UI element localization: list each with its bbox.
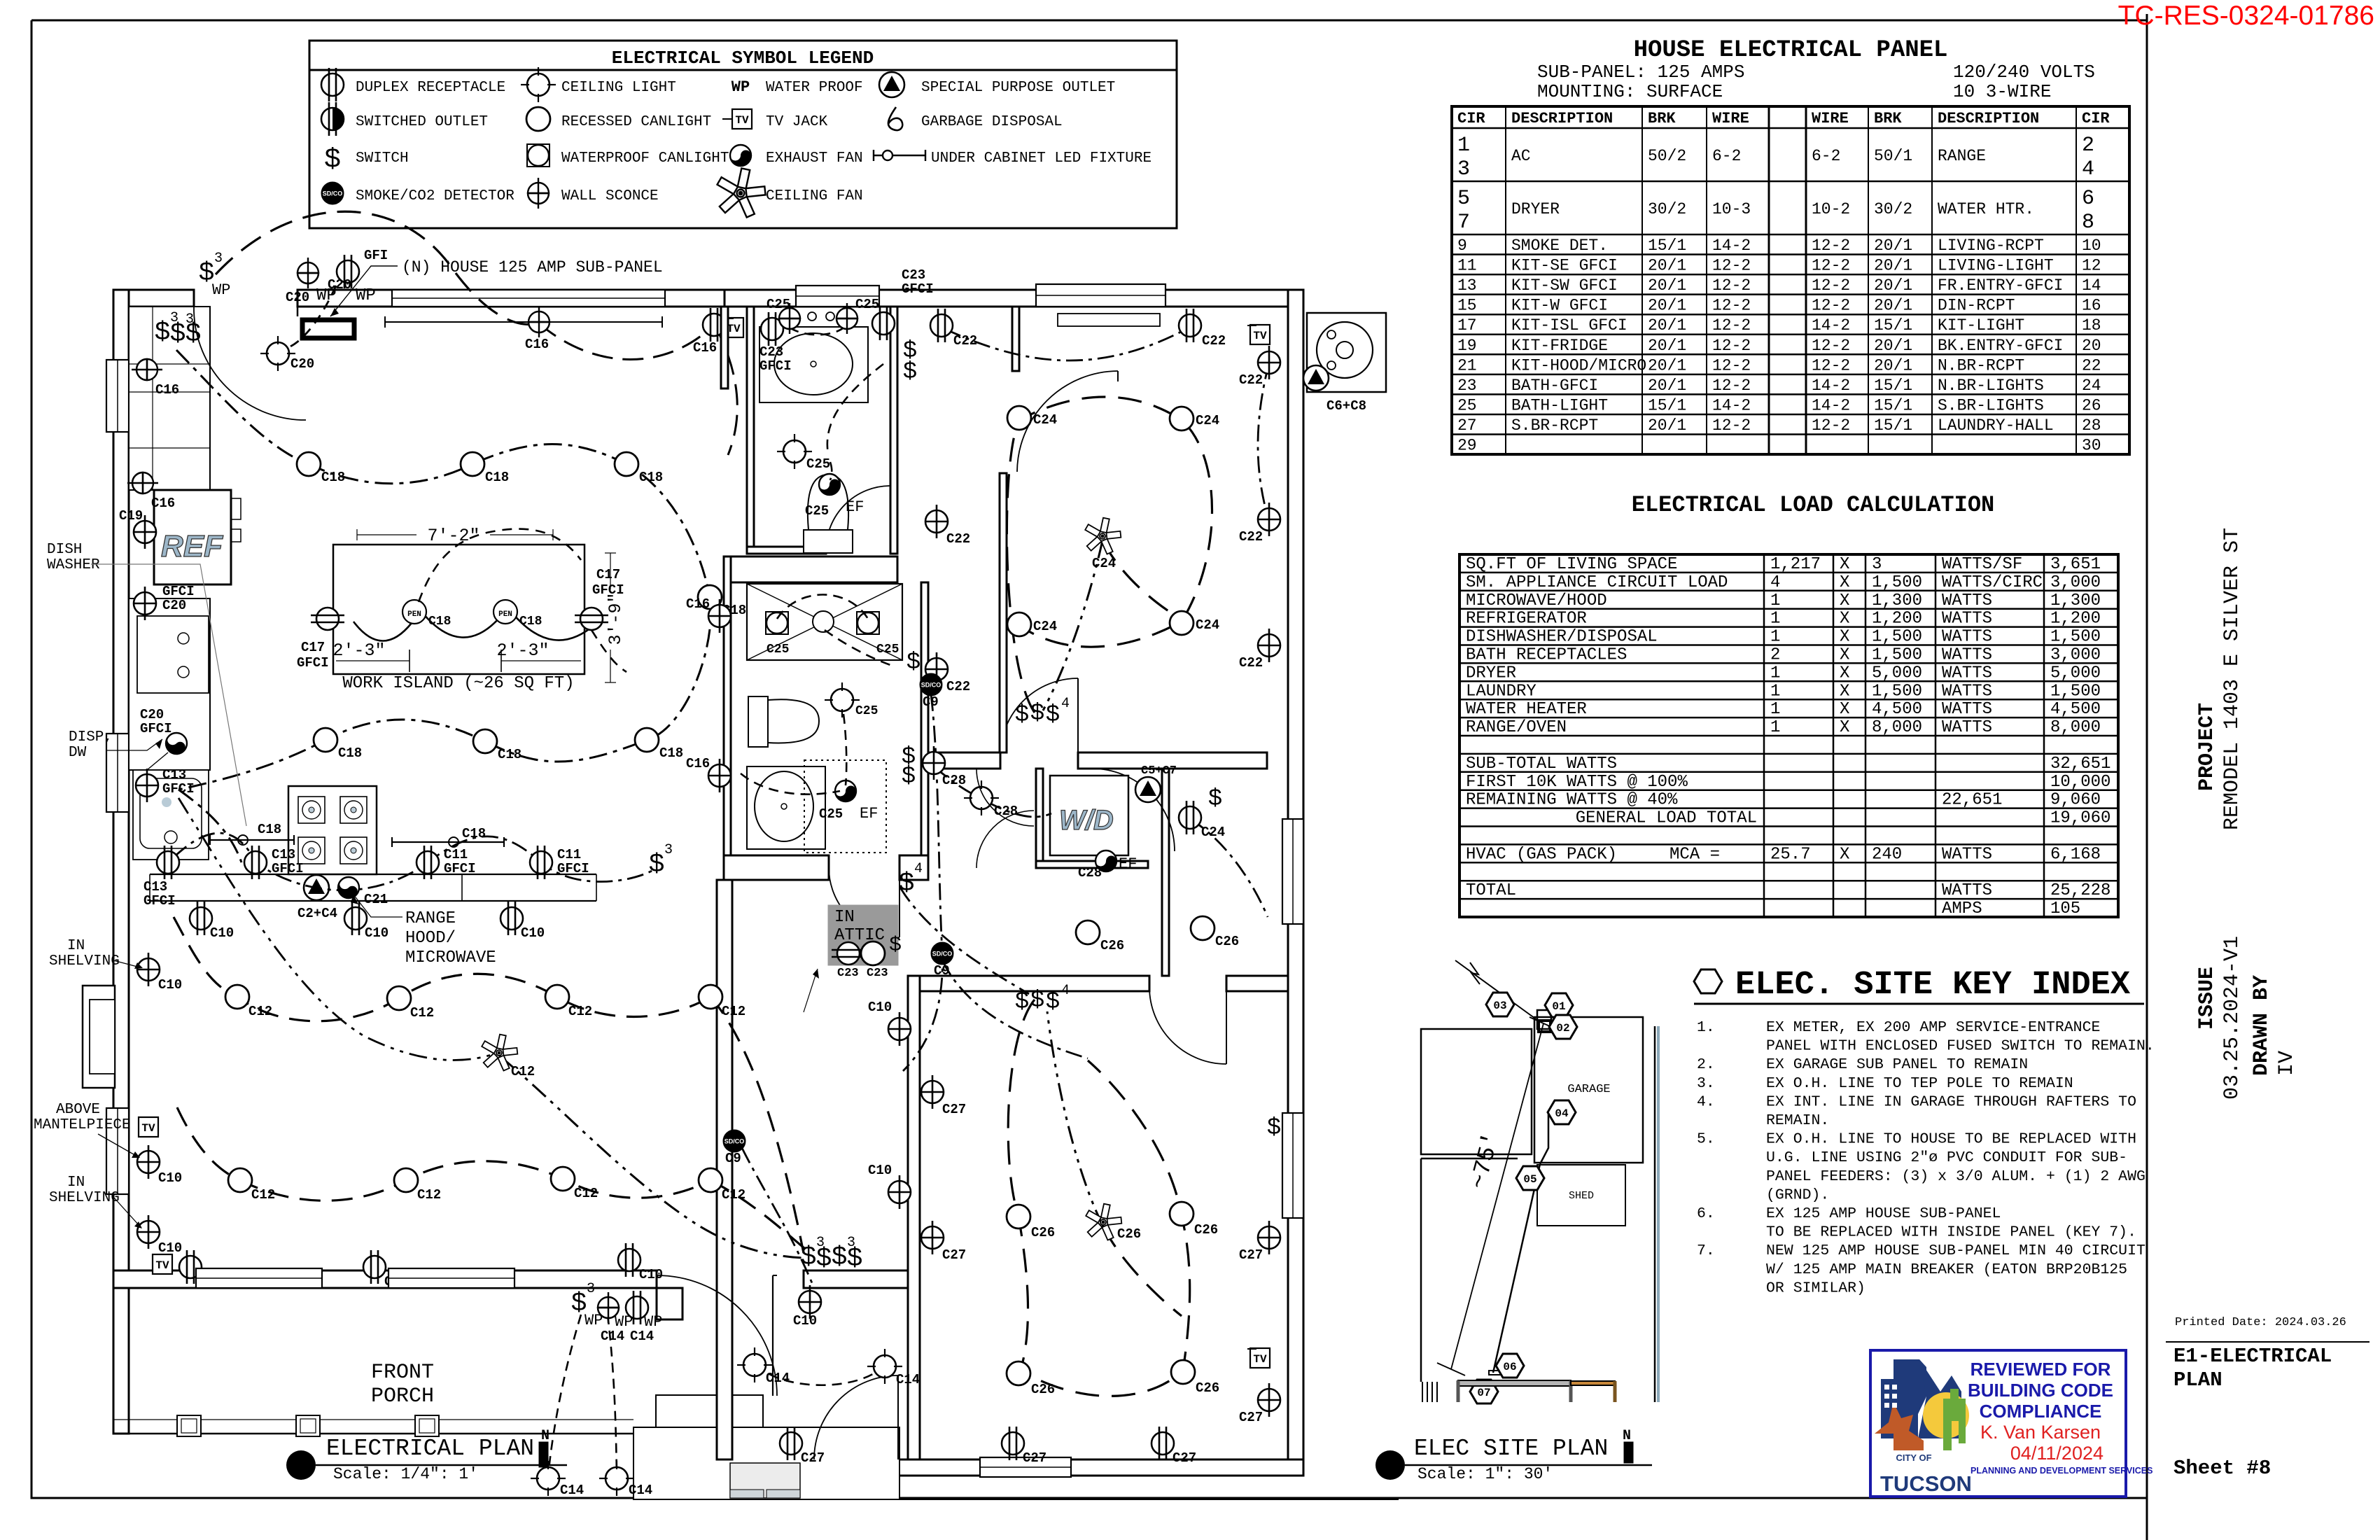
svg-text:GENERAL LOAD TOTAL: GENERAL LOAD TOTAL [1576, 809, 1757, 828]
svg-text:C16: C16 [686, 596, 710, 612]
svg-text:WASHER: WASHER [47, 557, 100, 573]
svg-text:RANGE: RANGE [405, 909, 456, 928]
svg-text:C9: C9 [725, 1151, 741, 1166]
svg-text:X: X [1840, 628, 1849, 647]
svg-text:GFCI: GFCI [272, 861, 304, 876]
svg-text:$: $ [1046, 702, 1060, 729]
svg-text:AC: AC [1511, 147, 1531, 165]
svg-text:PANEL FEEDERS: (3) x 3/0 ALUM.: PANEL FEEDERS: (3) x 3/0 ALUM. + (1) 2 A… [1766, 1168, 2145, 1185]
svg-text:12-2: 12-2 [1712, 416, 1751, 435]
svg-text:WATTS: WATTS [1942, 845, 1992, 864]
svg-text:25: 25 [1457, 396, 1477, 414]
svg-text:C10: C10 [639, 1267, 663, 1282]
svg-text:C16: C16 [693, 340, 717, 356]
svg-text:3: 3 [664, 842, 673, 858]
svg-text:ELEC. SITE KEY INDEX: ELEC. SITE KEY INDEX [1735, 967, 2131, 1004]
svg-text:C26: C26 [1100, 938, 1124, 953]
svg-text:Printed Date: 2024.03.26: Printed Date: 2024.03.26 [2175, 1316, 2346, 1329]
svg-text:COMPLIANCE: COMPLIANCE [1980, 1401, 2102, 1422]
svg-text:2: 2 [1770, 646, 1780, 665]
svg-text:C25: C25 [805, 503, 829, 519]
svg-text:EF: EF [1119, 855, 1137, 873]
svg-text:WATTS/SF: WATTS/SF [1942, 555, 2022, 574]
svg-text:5,000: 5,000 [1872, 664, 1922, 682]
svg-text:C27: C27 [1239, 1410, 1263, 1425]
svg-text:X: X [1840, 610, 1849, 629]
svg-text:REMAIN.: REMAIN. [1766, 1112, 1829, 1129]
svg-text:20/1: 20/1 [1874, 356, 1912, 374]
svg-text:C28: C28 [1078, 865, 1102, 881]
svg-text:DRYER: DRYER [1466, 664, 1516, 682]
svg-text:IV: IV [2275, 1051, 2299, 1076]
svg-text:W/ 125 AMP MAIN BREAKER (EATON: W/ 125 AMP MAIN BREAKER (EATON BRP20B125 [1766, 1261, 2127, 1278]
svg-text:N.BR-RCPT: N.BR-RCPT [1938, 356, 2024, 374]
svg-text:12-2: 12-2 [1812, 276, 1850, 295]
svg-text:GFCI: GFCI [444, 861, 476, 876]
svg-text:04: 04 [1555, 1107, 1569, 1120]
svg-text:25.7: 25.7 [1770, 845, 1811, 864]
svg-text:CEILING LIGHT: CEILING LIGHT [561, 80, 676, 96]
svg-text:$: $ [816, 1244, 832, 1274]
svg-text:03: 03 [1493, 1000, 1506, 1012]
svg-text:1: 1 [1770, 628, 1780, 647]
svg-text:KIT-ISL GFCI: KIT-ISL GFCI [1511, 316, 1627, 335]
svg-text:X: X [1840, 845, 1849, 864]
svg-text:C18: C18 [258, 822, 281, 837]
svg-text:C26: C26 [1196, 1380, 1219, 1396]
svg-text:5: 5 [1457, 187, 1470, 211]
svg-text:WATTS: WATTS [1942, 664, 1992, 682]
svg-text:C18: C18 [338, 745, 362, 761]
svg-text:S.BR-LIGHTS: S.BR-LIGHTS [1938, 396, 2044, 414]
svg-text:6,168: 6,168 [2050, 845, 2101, 864]
svg-text:X: X [1840, 718, 1849, 737]
svg-text:20/1: 20/1 [1648, 337, 1686, 355]
svg-text:$: $ [1015, 989, 1029, 1016]
svg-text:C12: C12 [568, 1004, 592, 1019]
svg-text:UNDER CABINET LED FIXTURE: UNDER CABINET LED FIXTURE [931, 150, 1151, 167]
svg-text:2.: 2. [1697, 1056, 1715, 1073]
svg-text:DRYER: DRYER [1511, 200, 1560, 218]
svg-text:C16: C16 [151, 496, 175, 511]
svg-text:C12: C12 [574, 1186, 598, 1201]
svg-text:GFCI: GFCI [140, 721, 172, 736]
svg-text:6-2: 6-2 [1712, 147, 1741, 165]
svg-text:6: 6 [2082, 187, 2094, 211]
svg-text:C16: C16 [155, 382, 179, 398]
svg-text:RECESSED CANLIGHT: RECESSED CANLIGHT [561, 114, 711, 130]
svg-text:C13: C13 [162, 767, 186, 783]
svg-text:KIT-W GFCI: KIT-W GFCI [1511, 297, 1608, 315]
svg-text:EXHAUST FAN: EXHAUST FAN [766, 150, 863, 167]
svg-text:C12: C12 [722, 1004, 745, 1019]
svg-text:14: 14 [2082, 276, 2101, 295]
svg-text:15/1: 15/1 [1648, 396, 1686, 414]
svg-text:Scale: 1": 30': Scale: 1": 30' [1417, 1465, 1553, 1483]
svg-text:10,000: 10,000 [2050, 773, 2110, 792]
svg-text:C12: C12 [410, 1005, 434, 1021]
svg-text:GFCI: GFCI [297, 655, 329, 671]
svg-text:C9: C9 [923, 694, 939, 710]
svg-text:$: $ [902, 764, 916, 790]
svg-text:20/1: 20/1 [1874, 337, 1912, 355]
svg-text:SWITCHED OUTLET: SWITCHED OUTLET [356, 114, 488, 130]
svg-text:DISP,: DISP, [69, 729, 113, 745]
svg-text:14-2: 14-2 [1712, 237, 1751, 255]
svg-text:C23: C23 [867, 967, 888, 980]
svg-text:30/2: 30/2 [1874, 200, 1912, 218]
svg-text:SMOKE/CO2 DETECTOR: SMOKE/CO2 DETECTOR [356, 188, 514, 204]
svg-text:SM. APPLIANCE CIRCUIT LOAD: SM. APPLIANCE CIRCUIT LOAD [1466, 573, 1728, 592]
svg-text:C24: C24 [1033, 619, 1057, 634]
svg-text:PORCH: PORCH [371, 1385, 434, 1408]
svg-text:C12: C12 [248, 1004, 272, 1019]
svg-text:01: 01 [1552, 1000, 1565, 1013]
svg-text:IN: IN [834, 908, 855, 927]
svg-text:15: 15 [1457, 297, 1477, 315]
svg-text:22: 22 [2082, 356, 2101, 374]
svg-text:20/1: 20/1 [1648, 377, 1686, 395]
svg-text:TV JACK: TV JACK [766, 114, 828, 130]
svg-text:X: X [1840, 591, 1849, 610]
svg-text:24: 24 [2082, 377, 2101, 395]
svg-text:21: 21 [1457, 356, 1477, 374]
svg-text:12: 12 [2082, 257, 2101, 275]
svg-text:MICROWAVE: MICROWAVE [405, 948, 496, 967]
svg-text:C20: C20 [286, 290, 309, 305]
svg-text:DRAWN BY: DRAWN BY [2250, 975, 2274, 1076]
svg-text:3,000: 3,000 [2050, 573, 2101, 592]
svg-text:1,217: 1,217 [1770, 555, 1821, 574]
svg-text:17: 17 [1457, 316, 1477, 335]
svg-text:7: 7 [1457, 211, 1470, 234]
svg-text:DISH: DISH [47, 542, 82, 558]
svg-text:WATTS: WATTS [1942, 881, 1992, 900]
svg-text:WP: WP [356, 286, 376, 305]
svg-text:13: 13 [1457, 276, 1477, 295]
svg-text:REF: REF [161, 529, 223, 563]
svg-text:KIT-SE GFCI: KIT-SE GFCI [1511, 257, 1618, 275]
svg-text:C25: C25 [806, 456, 830, 472]
svg-text:3: 3 [1872, 555, 1882, 574]
svg-text:WATTS: WATTS [1942, 646, 1992, 665]
svg-text:WATTS: WATTS [1942, 591, 1992, 610]
svg-text:15/1: 15/1 [1874, 377, 1912, 395]
svg-text:C10: C10 [868, 1163, 892, 1178]
svg-text:20/1: 20/1 [1874, 297, 1912, 315]
svg-text:ELECTRICAL SYMBOL LEGEND: ELECTRICAL SYMBOL LEGEND [612, 48, 874, 69]
svg-text:WATER PROOF: WATER PROOF [766, 80, 863, 96]
svg-text:SHELVING: SHELVING [49, 953, 120, 969]
svg-text:X: X [1840, 682, 1849, 701]
svg-text:HVAC (GAS PACK): HVAC (GAS PACK) [1466, 845, 1617, 864]
svg-text:KIT-FRIDGE: KIT-FRIDGE [1511, 337, 1608, 355]
svg-text:C13: C13 [272, 847, 295, 862]
svg-text:1,500: 1,500 [2050, 628, 2101, 647]
svg-text:X: X [1840, 555, 1849, 574]
svg-text:C9: C9 [934, 963, 950, 979]
svg-text:14-2: 14-2 [1812, 396, 1850, 414]
svg-text:22,651: 22,651 [1942, 791, 2002, 810]
svg-text:4: 4 [1061, 983, 1070, 999]
svg-text:$: $ [903, 359, 917, 386]
svg-text:4: 4 [1770, 573, 1780, 592]
svg-text:C14: C14 [601, 1329, 624, 1344]
svg-text:C20: C20 [328, 277, 351, 293]
svg-text:C13: C13 [143, 879, 167, 895]
svg-text:ELECTRICAL PLAN: ELECTRICAL PLAN [326, 1436, 534, 1462]
svg-text:19,060: 19,060 [2050, 809, 2110, 828]
svg-text:IN: IN [67, 938, 85, 954]
svg-text:C28: C28 [942, 773, 966, 788]
svg-text:3'-9": 3'-9" [605, 592, 626, 645]
svg-text:C10: C10 [158, 977, 182, 993]
svg-text:FRONT: FRONT [371, 1361, 434, 1385]
svg-text:REVIEWED FOR: REVIEWED FOR [1970, 1359, 2111, 1380]
svg-text:12-2: 12-2 [1712, 316, 1751, 335]
svg-text:25,228: 25,228 [2050, 881, 2110, 900]
svg-text:WP: WP [731, 78, 750, 96]
svg-text:SHED: SHED [1569, 1190, 1594, 1202]
svg-text:3: 3 [214, 251, 223, 267]
svg-text:C26: C26 [1117, 1226, 1141, 1242]
svg-text:Sheet #8: Sheet #8 [2173, 1457, 2271, 1480]
svg-text:PEN: PEN [498, 610, 512, 619]
svg-text:EX O.H. LINE TO TEP POLE TO RE: EX O.H. LINE TO TEP POLE TO REMAIN [1766, 1075, 2073, 1092]
svg-text:WIRE: WIRE [1712, 110, 1749, 127]
svg-text:BATH-LIGHT: BATH-LIGHT [1511, 396, 1608, 414]
svg-text:9,060: 9,060 [2050, 791, 2101, 810]
svg-text:C27: C27 [801, 1450, 825, 1466]
svg-text:SUB-PANEL: 125 AMPS: SUB-PANEL: 125 AMPS [1537, 62, 1744, 83]
svg-text:C16: C16 [525, 337, 549, 352]
svg-text:6-2: 6-2 [1812, 147, 1840, 165]
svg-text:1: 1 [1770, 682, 1780, 701]
svg-text:REMODEL 1403 E SILVER ST: REMODEL 1403 E SILVER ST [2220, 528, 2244, 830]
svg-text:12-2: 12-2 [1812, 297, 1850, 315]
svg-text:50/2: 50/2 [1648, 147, 1686, 165]
svg-text:X: X [1840, 646, 1849, 665]
svg-text:06: 06 [1503, 1361, 1516, 1373]
svg-text:C24: C24 [1201, 825, 1225, 840]
svg-text:C22: C22 [946, 679, 970, 694]
svg-text:KIT-HOOD/MICRO: KIT-HOOD/MICRO [1511, 356, 1646, 374]
svg-text:E1-ELECTRICAL: E1-ELECTRICAL [2173, 1345, 2332, 1368]
svg-text:WP: WP [212, 281, 230, 299]
svg-text:HOOD/: HOOD/ [405, 929, 456, 948]
svg-text:ISSUE: ISSUE [2195, 967, 2219, 1030]
svg-text:15/1: 15/1 [1874, 416, 1912, 435]
svg-text:C20: C20 [140, 707, 164, 722]
svg-text:C18: C18 [659, 745, 683, 761]
svg-text:14-2: 14-2 [1712, 396, 1751, 414]
svg-text:C12: C12 [511, 1064, 535, 1079]
svg-text:$: $ [1208, 786, 1222, 813]
svg-text:ABOVE: ABOVE [56, 1102, 100, 1118]
svg-text:20/1: 20/1 [1874, 276, 1912, 295]
svg-text:BATH-GFCI: BATH-GFCI [1511, 377, 1598, 395]
svg-text:1: 1 [1770, 718, 1780, 737]
svg-text:BUILDING CODE: BUILDING CODE [1968, 1380, 2113, 1401]
svg-text:KIT-LIGHT: KIT-LIGHT [1938, 316, 2024, 335]
svg-text:20: 20 [2082, 337, 2101, 355]
svg-text:12-2: 12-2 [1712, 377, 1751, 395]
svg-text:EF: EF [846, 498, 864, 516]
svg-text:BRK: BRK [1874, 110, 1902, 127]
svg-text:C17: C17 [596, 567, 620, 582]
svg-text:3,651: 3,651 [2050, 555, 2101, 574]
svg-text:C24: C24 [1092, 556, 1116, 571]
svg-text:12-2: 12-2 [1712, 276, 1751, 295]
svg-text:32,651: 32,651 [2050, 755, 2110, 773]
svg-text:WATTS: WATTS [1942, 718, 1992, 737]
svg-text:1: 1 [1770, 700, 1780, 719]
svg-text:04/11/2024: 04/11/2024 [2010, 1443, 2103, 1464]
svg-text:2: 2 [2082, 134, 2094, 157]
svg-text:4,500: 4,500 [1872, 700, 1922, 719]
svg-text:C12: C12 [722, 1187, 745, 1203]
svg-text:$: $ [185, 319, 202, 349]
svg-text:30: 30 [2082, 437, 2101, 455]
svg-text:KIT-SW GFCI: KIT-SW GFCI [1511, 276, 1618, 295]
svg-text:C19: C19 [119, 508, 143, 524]
svg-text:FIRST 10K WATTS @ 100%: FIRST 10K WATTS @ 100% [1466, 773, 1688, 792]
svg-text:EX INT. LINE IN GARAGE THROUGH: EX INT. LINE IN GARAGE THROUGH RAFTERS T… [1766, 1093, 2136, 1110]
svg-text:WATTS: WATTS [1942, 610, 1992, 629]
svg-text:SWITCH: SWITCH [356, 150, 409, 167]
svg-text:C20: C20 [162, 598, 186, 613]
svg-text:1,500: 1,500 [1872, 682, 1922, 701]
svg-text:4,500: 4,500 [2050, 700, 2101, 719]
svg-text:REMAINING WATTS @ 40%: REMAINING WATTS @ 40% [1466, 791, 1678, 810]
svg-text:GARBAGE DISPOSAL: GARBAGE DISPOSAL [921, 114, 1063, 130]
svg-text:C27: C27 [1239, 1247, 1263, 1263]
svg-text:3,000: 3,000 [2050, 646, 2101, 665]
svg-text:4: 4 [2082, 157, 2094, 181]
svg-text:C11: C11 [444, 847, 468, 862]
svg-text:1: 1 [1770, 664, 1780, 682]
svg-text:RANGE/OVEN: RANGE/OVEN [1466, 718, 1567, 737]
svg-text:20/1: 20/1 [1648, 356, 1686, 374]
svg-text:07: 07 [1477, 1387, 1490, 1399]
svg-text:MCA =: MCA = [1669, 845, 1720, 864]
svg-text:TUCSON: TUCSON [1880, 1471, 1972, 1496]
svg-text:C18: C18 [519, 615, 542, 629]
svg-text:$: $ [1030, 701, 1044, 727]
svg-text:C14: C14 [630, 1329, 654, 1344]
svg-text:C18: C18 [428, 615, 451, 629]
svg-text:16: 16 [2082, 297, 2101, 315]
svg-text:12-2: 12-2 [1812, 416, 1850, 435]
svg-text:120/240 VOLTS: 120/240 VOLTS [1953, 62, 2095, 83]
svg-text:7'-2": 7'-2" [427, 526, 479, 546]
svg-text:EF: EF [860, 805, 878, 822]
svg-text:20/1: 20/1 [1648, 416, 1686, 435]
svg-text:3: 3 [587, 1281, 595, 1297]
svg-text:8: 8 [2082, 211, 2094, 234]
svg-text:GFI: GFI [364, 248, 388, 263]
svg-text:C25: C25 [855, 704, 878, 718]
svg-text:C10: C10 [868, 1000, 892, 1015]
svg-text:EX METER, EX 200 AMP SERVICE-E: EX METER, EX 200 AMP SERVICE-ENTRANCE [1766, 1019, 2100, 1036]
svg-text:2'-3": 2'-3" [496, 640, 549, 661]
svg-text:WALL SCONCE: WALL SCONCE [561, 188, 659, 204]
svg-text:12-2: 12-2 [1812, 356, 1850, 374]
svg-text:W/D: W/D [1059, 805, 1114, 836]
svg-text:C25: C25 [766, 297, 790, 312]
svg-text:C22: C22 [1202, 333, 1226, 349]
svg-text:C12: C12 [251, 1187, 275, 1203]
svg-text:1,300: 1,300 [1872, 591, 1922, 610]
svg-text:12-2: 12-2 [1712, 257, 1751, 275]
svg-text:15/1: 15/1 [1874, 396, 1912, 414]
svg-text:30/2: 30/2 [1648, 200, 1686, 218]
svg-text:15/1: 15/1 [1874, 316, 1912, 335]
svg-text:SPECIAL PURPOSE OUTLET: SPECIAL PURPOSE OUTLET [921, 80, 1115, 96]
svg-text:20/1: 20/1 [1874, 237, 1912, 255]
svg-text:C25: C25 [819, 806, 843, 822]
svg-text:(N) HOUSE 125 AMP SUB-PANEL: (N) HOUSE 125 AMP SUB-PANEL [402, 258, 663, 276]
svg-text:SHELVING: SHELVING [49, 1190, 120, 1206]
svg-text:K. Van Karsen: K. Van Karsen [1980, 1422, 2101, 1443]
svg-text:C25: C25 [766, 643, 789, 657]
svg-text:ELEC SITE PLAN: ELEC SITE PLAN [1414, 1436, 1608, 1462]
svg-text:CEILING FAN: CEILING FAN [766, 188, 863, 204]
svg-text:WATTS/CIRC: WATTS/CIRC [1942, 573, 2043, 592]
svg-text:4.: 4. [1697, 1093, 1715, 1110]
svg-text:2'-3": 2'-3" [332, 640, 385, 661]
svg-text:C27: C27 [1172, 1450, 1196, 1466]
svg-text:IN: IN [67, 1175, 85, 1191]
svg-text:C11: C11 [557, 847, 581, 862]
svg-text:C10: C10 [158, 1240, 182, 1256]
svg-text:GFCI: GFCI [557, 861, 589, 876]
svg-text:C14: C14 [896, 1372, 920, 1387]
svg-text:C10: C10 [793, 1313, 817, 1329]
svg-text:C25: C25 [855, 297, 879, 312]
svg-text:EX 125 AMP HOUSE SUB-PANEL: EX 125 AMP HOUSE SUB-PANEL [1766, 1205, 2001, 1222]
svg-text:1,500: 1,500 [1872, 646, 1922, 665]
svg-text:WATTS: WATTS [1942, 628, 1992, 647]
svg-text:AMPS: AMPS [1942, 899, 1982, 918]
svg-text:12-2: 12-2 [1812, 237, 1850, 255]
svg-text:1: 1 [1457, 134, 1470, 157]
svg-text:1,300: 1,300 [2050, 591, 2101, 610]
svg-text:(GRND).: (GRND). [1766, 1186, 1829, 1203]
svg-text:C14: C14 [629, 1483, 652, 1498]
svg-text:$: $ [889, 934, 902, 958]
svg-text:EX GARAGE SUB PANEL TO REMAIN: EX GARAGE SUB PANEL TO REMAIN [1766, 1056, 2028, 1073]
svg-text:19: 19 [1457, 337, 1477, 355]
svg-text:C23: C23 [902, 267, 925, 283]
svg-text:GFCI: GFCI [143, 893, 176, 909]
svg-text:C10: C10 [521, 925, 545, 941]
svg-text:C10: C10 [365, 925, 388, 941]
svg-text:20/1: 20/1 [1648, 276, 1686, 295]
svg-text:C24: C24 [1033, 412, 1057, 428]
svg-text:C24: C24 [1196, 617, 1219, 633]
svg-text:CITY OF: CITY OF [1896, 1452, 1931, 1463]
svg-text:C18: C18 [321, 470, 345, 485]
svg-text:CIR: CIR [2082, 110, 2110, 127]
svg-text:C26: C26 [1194, 1222, 1218, 1238]
svg-text:$: $ [1030, 988, 1044, 1014]
svg-text:10-3: 10-3 [1712, 200, 1751, 218]
svg-text:C22: C22 [946, 531, 970, 547]
svg-text:LIVING-RCPT: LIVING-RCPT [1938, 237, 2044, 255]
svg-text:NEW 125 AMP HOUSE SUB-PANEL MI: NEW 125 AMP HOUSE SUB-PANEL MIN 40 CIRCU… [1766, 1242, 2145, 1259]
svg-text:26: 26 [2082, 396, 2101, 414]
